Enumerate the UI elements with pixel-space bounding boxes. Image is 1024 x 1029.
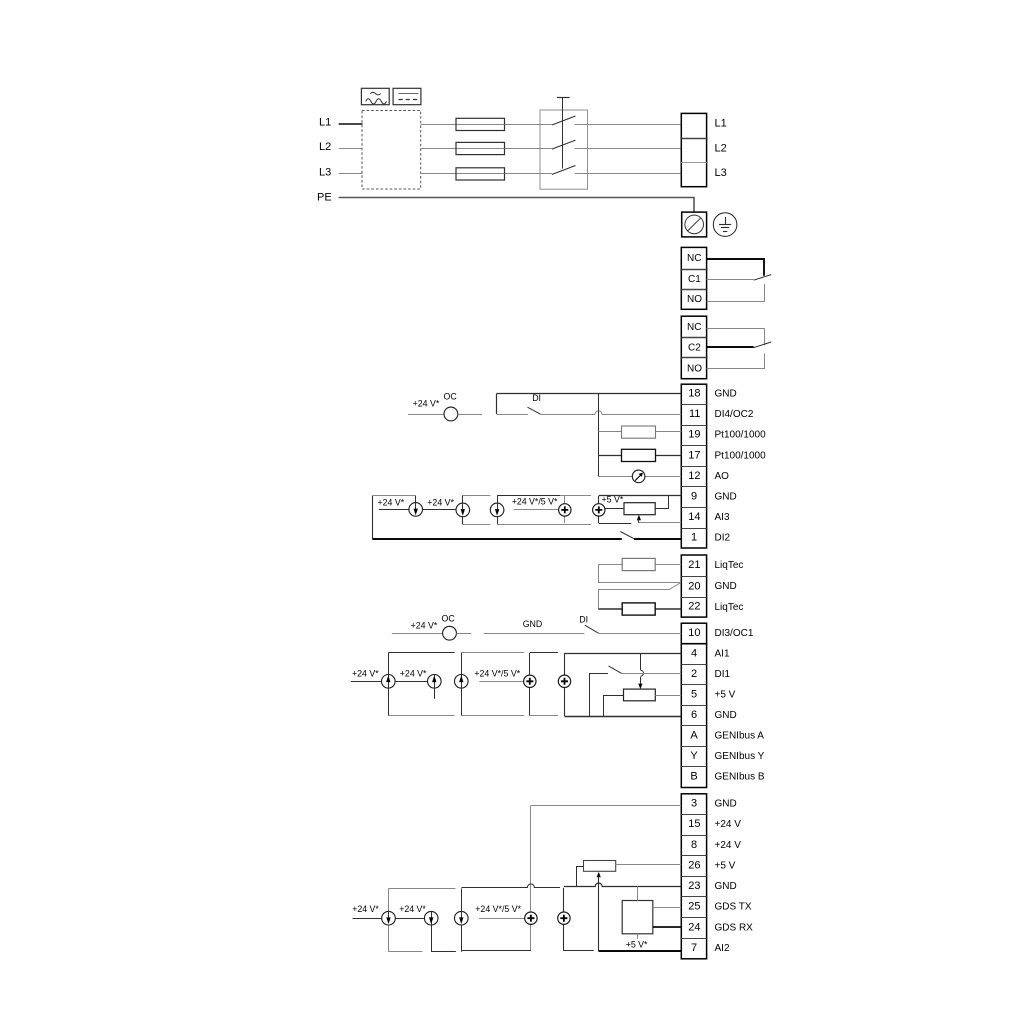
svg-text:22: 22 xyxy=(688,601,700,613)
svg-text:AI2: AI2 xyxy=(715,943,730,954)
svg-text:+5 V: +5 V xyxy=(715,860,736,871)
svg-text:OC: OC xyxy=(444,392,458,402)
svg-text:C1: C1 xyxy=(688,274,701,285)
svg-text:17: 17 xyxy=(688,449,700,461)
svg-text:AI3: AI3 xyxy=(715,512,730,523)
svg-text:+24 V*: +24 V* xyxy=(378,497,405,507)
svg-text:DI: DI xyxy=(532,393,541,403)
svg-text:8: 8 xyxy=(691,839,697,851)
svg-text:AI1: AI1 xyxy=(715,648,730,659)
svg-text:+24 V*/5 V*: +24 V*/5 V* xyxy=(475,904,521,914)
svg-text:1: 1 xyxy=(691,532,697,544)
svg-text:18: 18 xyxy=(688,388,700,400)
svg-text:21: 21 xyxy=(688,559,700,571)
svg-text:Pt100/1000: Pt100/1000 xyxy=(715,430,767,441)
svg-text:7: 7 xyxy=(691,942,697,954)
svg-text:L2: L2 xyxy=(715,142,727,154)
svg-text:10: 10 xyxy=(688,627,700,639)
svg-text:+24 V*: +24 V* xyxy=(400,669,427,679)
svg-text:+5 V*: +5 V* xyxy=(626,939,648,949)
svg-text:12: 12 xyxy=(688,470,700,482)
svg-text:GENIbus A: GENIbus A xyxy=(715,731,765,742)
svg-text:NC: NC xyxy=(687,322,701,333)
svg-text:L3: L3 xyxy=(715,167,727,179)
svg-text:GDS TX: GDS TX xyxy=(715,902,752,913)
svg-text:3: 3 xyxy=(691,798,697,810)
svg-text:LiqTec: LiqTec xyxy=(715,560,744,571)
svg-text:C2: C2 xyxy=(688,342,701,353)
svg-text:2: 2 xyxy=(691,668,697,680)
svg-text:NC: NC xyxy=(687,253,701,264)
svg-text:+24 V*: +24 V* xyxy=(411,621,438,631)
svg-text:GND: GND xyxy=(715,799,737,810)
svg-text:15: 15 xyxy=(688,818,700,830)
svg-text:25: 25 xyxy=(688,901,700,913)
svg-text:23: 23 xyxy=(688,880,700,892)
svg-text:20: 20 xyxy=(688,580,700,592)
svg-text:A: A xyxy=(690,730,698,742)
svg-text:GND: GND xyxy=(715,881,737,892)
svg-text:L2: L2 xyxy=(319,141,331,153)
svg-text:B: B xyxy=(690,771,697,783)
svg-text:DI3/OC1: DI3/OC1 xyxy=(715,628,754,639)
svg-text:GND: GND xyxy=(523,619,543,629)
svg-text:Y: Y xyxy=(690,750,698,762)
svg-text:GENIbus Y: GENIbus Y xyxy=(715,751,765,762)
svg-text:+24 V*: +24 V* xyxy=(399,904,426,914)
svg-text:6: 6 xyxy=(691,709,697,721)
svg-text:+24 V*: +24 V* xyxy=(427,497,454,507)
svg-text:DI2: DI2 xyxy=(715,533,731,544)
svg-text:DI1: DI1 xyxy=(715,669,731,680)
svg-text:9: 9 xyxy=(691,491,697,503)
svg-text:14: 14 xyxy=(688,511,700,523)
svg-text:NO: NO xyxy=(687,363,702,374)
svg-text:L1: L1 xyxy=(715,118,727,130)
svg-text:11: 11 xyxy=(689,408,700,420)
svg-text:26: 26 xyxy=(688,859,700,871)
svg-text:+24 V: +24 V xyxy=(715,819,742,830)
svg-text:19: 19 xyxy=(688,429,700,441)
svg-text:DI4/OC2: DI4/OC2 xyxy=(715,409,754,420)
svg-text:AO: AO xyxy=(715,471,730,482)
svg-text:+5 V: +5 V xyxy=(715,690,736,701)
svg-text:+24 V*/5 V*: +24 V*/5 V* xyxy=(474,669,520,679)
svg-text:+24 V*: +24 V* xyxy=(352,904,379,914)
svg-text:5: 5 xyxy=(691,688,697,700)
svg-text:GENIbus B: GENIbus B xyxy=(715,772,765,783)
svg-text:GDS RX: GDS RX xyxy=(715,922,754,933)
svg-text:+24 V: +24 V xyxy=(715,840,742,851)
svg-text:+24 V*/5 V*: +24 V*/5 V* xyxy=(512,497,558,507)
svg-text:OC: OC xyxy=(442,614,456,624)
svg-text:NO: NO xyxy=(687,294,702,305)
svg-text:GND: GND xyxy=(715,581,737,592)
svg-text:4: 4 xyxy=(691,647,697,659)
svg-text:GND: GND xyxy=(715,389,737,400)
svg-text:L3: L3 xyxy=(319,166,331,178)
svg-text:LiqTec: LiqTec xyxy=(715,602,744,613)
svg-text:+24 V*: +24 V* xyxy=(413,398,440,408)
svg-text:DI: DI xyxy=(579,614,588,624)
svg-text:+24 V*: +24 V* xyxy=(352,669,379,679)
svg-text:PE: PE xyxy=(317,192,332,204)
svg-text:GND: GND xyxy=(715,710,737,721)
svg-text:GND: GND xyxy=(715,492,737,503)
svg-text:L1: L1 xyxy=(319,117,331,129)
svg-text:Pt100/1000: Pt100/1000 xyxy=(715,450,767,461)
svg-text:24: 24 xyxy=(688,921,700,933)
